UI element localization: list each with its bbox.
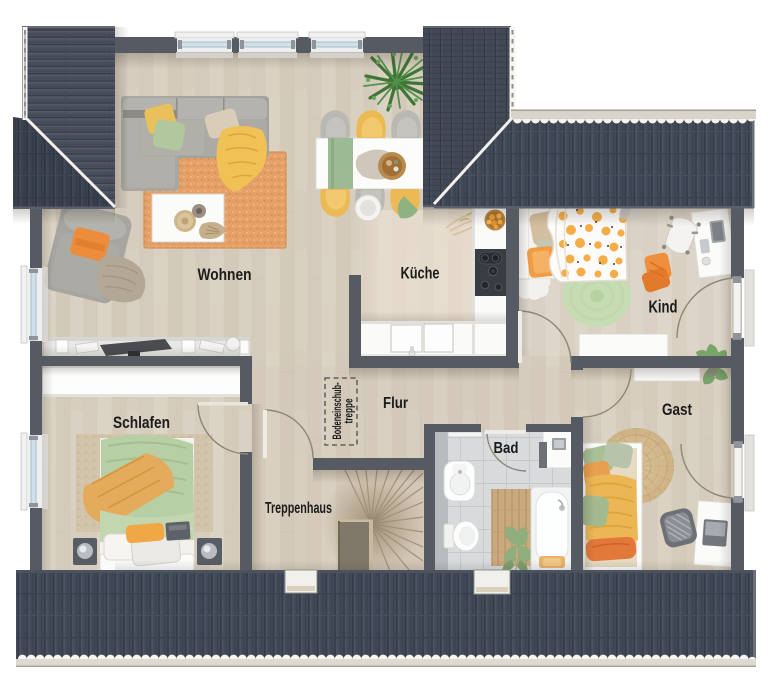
svg-text:Flur: Flur bbox=[383, 395, 408, 412]
svg-text:Bodeneinschub-: Bodeneinschub- bbox=[332, 382, 344, 439]
svg-text:Gast: Gast bbox=[662, 400, 692, 419]
svg-text:Bad: Bad bbox=[494, 440, 519, 457]
svg-text:Küche: Küche bbox=[401, 265, 440, 283]
svg-text:Schlafen: Schlafen bbox=[113, 413, 170, 432]
svg-text:treppe: treppe bbox=[344, 399, 356, 424]
svg-text:Kind: Kind bbox=[649, 297, 678, 317]
svg-text:Wohnen: Wohnen bbox=[198, 265, 252, 284]
svg-text:Treppenhaus: Treppenhaus bbox=[265, 500, 332, 517]
